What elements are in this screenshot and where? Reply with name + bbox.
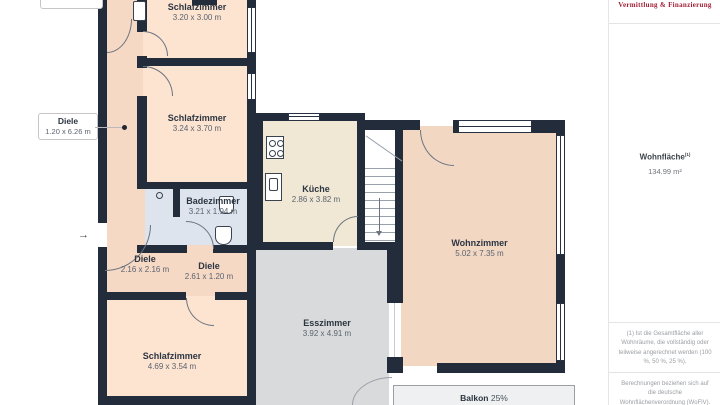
shower-drain-icon [156,192,163,199]
wall [556,120,565,135]
room-label-hall-long: Diele 1.20 x 6.26 m [38,113,98,140]
window [556,303,565,361]
wall [137,96,147,188]
room-label-balcony: Balkon 25% [394,393,574,403]
bath-sink-icon [219,196,234,214]
wall [437,363,565,373]
label-anchor-dot [122,125,127,130]
room-name: Balkon [460,393,488,403]
wall [255,113,263,250]
stairs-arrow-tip [376,231,382,236]
brand-tagline: Vermittlung & Finanzierung [609,1,720,9]
room-living [401,126,558,366]
divider [609,372,720,373]
wall [532,120,556,133]
kitchen-sink-icon [265,173,282,201]
stove-icon [266,136,284,159]
window [247,7,256,53]
footnote-marker: (1) [685,152,691,157]
wall [395,120,403,253]
room-name: Diele [42,116,94,127]
living-area-block: Wohnfläche(1) 134.99 m² [609,152,720,176]
wall [137,58,256,66]
stairs-arrow [379,198,380,232]
wall [357,120,420,130]
info-sidebar: Vermittlung & Finanzierung Wohnfläche(1)… [608,0,720,405]
wall [387,357,403,373]
floorplan-page: → Schlafzimmer 3.20 x 3.00 m Schlafzimme… [0,0,720,405]
room-balcony: Balkon 25% 5.08 x 1.50 m [393,385,575,405]
wall [173,187,180,217]
toilet-icon [215,226,232,245]
wall [247,0,256,7]
entrance-arrow-icon: → [78,230,89,241]
divider [609,322,720,323]
footnote-1: (1) Ist die Gesamtfläche aller Wohnräume… [617,330,713,367]
living-area-label: Wohnfläche(1) [609,152,720,162]
living-area-value: 134.99 m² [609,167,720,176]
window [556,135,565,255]
wall [98,292,186,300]
passage-threshold [394,303,395,357]
clipped-label-box [40,0,103,9]
wall [192,0,217,5]
wall [387,250,403,303]
wall [247,252,256,398]
wall [247,53,256,73]
wall [255,242,333,250]
window [288,113,320,121]
wall [357,113,365,250]
label-leader-line [95,127,123,128]
washbasin-icon [133,1,146,21]
divider [609,23,720,24]
window [458,120,532,133]
balcony-share: 25% [491,393,508,403]
room-dims: 1.20 x 6.26 m [42,127,94,137]
wall [137,182,256,189]
footnote-2: Berechnungen beziehen sich auf die deuts… [617,380,713,405]
wall [98,0,107,223]
wall [556,255,565,303]
wall [98,396,256,405]
window [247,73,256,100]
room-bed-bottom [105,296,250,400]
